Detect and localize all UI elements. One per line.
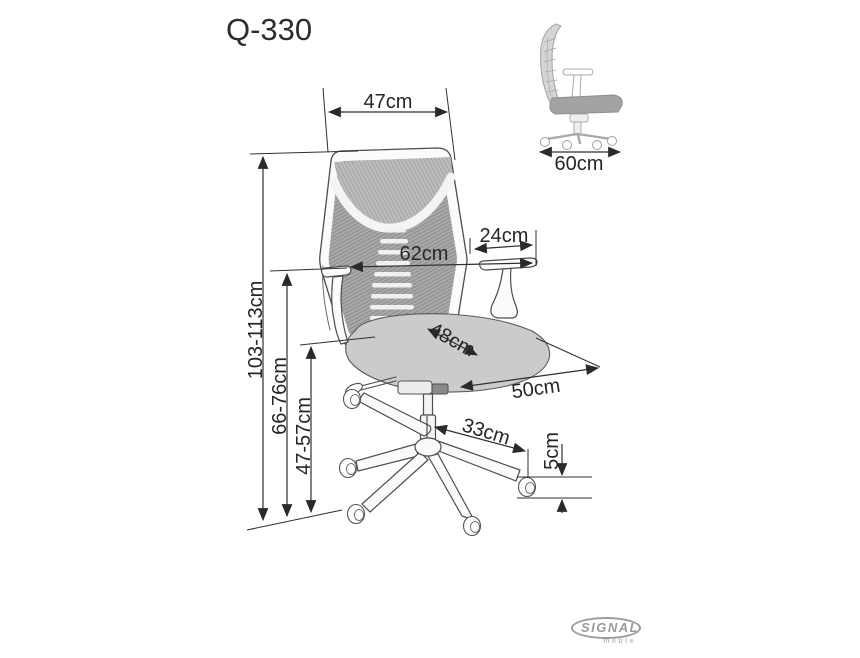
base-star [356,393,520,520]
caster-wheel [340,459,357,478]
right-armrest [479,258,537,318]
tilt-mechanism [398,381,432,394]
caster-wheel [344,390,361,409]
side-base-legs [547,134,611,143]
side-armrest-post [572,75,581,98]
caster-wheel [519,478,536,497]
dim-label-seat-height: 47-57cm [294,397,314,475]
side-seat [550,95,622,114]
dim-label-caster-height: 5cm [542,432,562,470]
product-title: Q-330 [226,12,312,48]
dim-label-backrest-width: 47cm [364,92,413,112]
signal-logo-subtitle: meble [571,638,641,645]
side-view-drawing [541,24,623,150]
caster-wheel [348,505,365,524]
dim-label-armrest-pad: 24cm [480,226,529,246]
adjust-knob [432,384,448,394]
signal-logo: SIGNAL meble [571,617,641,645]
side-mechanism [570,114,588,122]
product-dimension-diagram: Q-330 47cm 60cm 24cm 62cm 48cm 50cm 33cm… [0,0,860,658]
signal-logo-brand: SIGNAL [571,617,641,639]
side-armrest-pad [563,69,593,75]
dim-label-armrest-span: 62cm [400,244,449,264]
caster-wheel [464,517,481,536]
dim-label-armrest-height: 66-76cm [270,357,290,435]
dim-label-total-height: 103-113cm [246,281,266,380]
dim-label-side-depth: 60cm [555,154,604,174]
